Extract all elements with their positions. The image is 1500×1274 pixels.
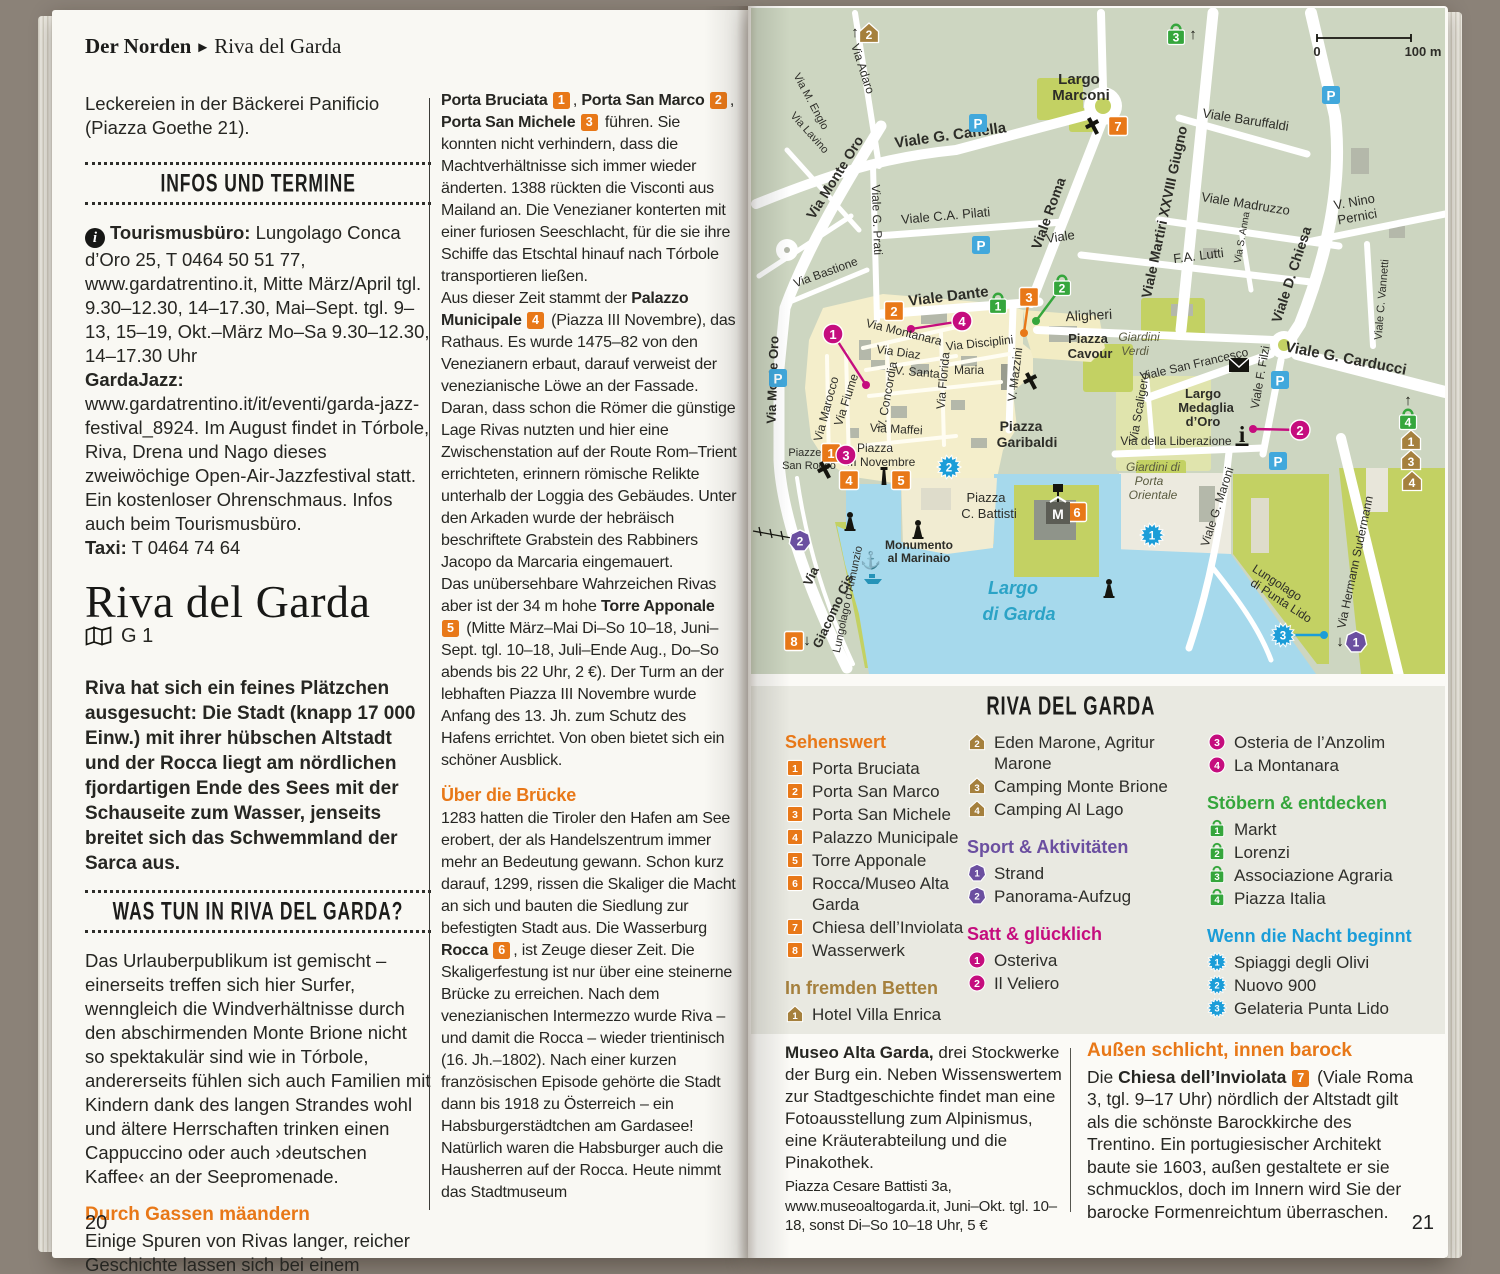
svg-text:3: 3 (842, 448, 849, 463)
map-label: d’Oro (1186, 414, 1221, 429)
paragraph: Porta Bruciata 1, Porta San Marco 2, Por… (441, 90, 739, 288)
svg-text:1: 1 (974, 956, 980, 967)
text-run: 1283 hatten die Tiroler den Hafen am See… (441, 810, 736, 937)
legend-item-label: Porta San Marco (812, 782, 940, 801)
legend-column: 2Eden Marone, Agritur Marone3Camping Mon… (967, 732, 1207, 1042)
legend-item-label: Osteria de l’Anzolim (1234, 733, 1385, 752)
marker-location-dot (862, 381, 870, 389)
legend-marker-sight-icon: 3 (785, 804, 805, 829)
paragraph: Aus dieser Zeit stammt der Palazzo Munic… (441, 288, 739, 574)
map-label: di Garda (982, 604, 1055, 624)
legend-item: 6Rocca/Museo Alta Garda (785, 873, 967, 915)
legend-item: 1Spiaggi degli Olivi (1207, 952, 1433, 973)
svg-text:6: 6 (792, 879, 798, 890)
legend-marker-sight-icon: 7 (785, 917, 805, 942)
svg-text:P: P (976, 239, 985, 254)
svg-text:3: 3 (792, 810, 798, 821)
svg-text:1: 1 (792, 764, 798, 775)
dotted-rule (85, 930, 431, 933)
svg-text:1: 1 (1353, 636, 1360, 650)
legend-item: 2Eden Marone, Agritur Marone (967, 732, 1207, 774)
legend-marker-sight-icon: 5 (785, 850, 805, 875)
museo-text: Museo Alta Garda, drei Stockwerke der Bu… (785, 1042, 1065, 1174)
marker-location-dot (1032, 317, 1040, 325)
svg-text:3: 3 (1173, 31, 1180, 45)
legend-item: 2Nuovo 900 (1207, 975, 1433, 996)
map-marker-food-3: 3 (836, 445, 856, 465)
svg-text:1: 1 (1214, 958, 1219, 968)
legend-marker-food-icon: 2 (967, 973, 987, 998)
offmap-arrow-icon: ↑ (1404, 392, 1412, 409)
legend-item: 3Osteria de l’Anzolim (1207, 732, 1433, 753)
legend-item-label: Strand (994, 864, 1044, 883)
legend-item: 2Lorenzi (1207, 842, 1433, 863)
svg-text:2: 2 (890, 304, 897, 319)
paragraph: Das Urlauberpublikum ist gemischt – eine… (85, 949, 431, 1189)
svg-text:M: M (1052, 506, 1064, 522)
svg-text:1: 1 (1214, 826, 1220, 837)
map-label: Medaglia (1178, 400, 1234, 415)
map-label: al Marinaio (888, 551, 951, 565)
legend-item: 4Piazza Italia (1207, 888, 1433, 909)
svg-text:2: 2 (797, 535, 804, 549)
tourism-info: iTourismusbüro: Lungolago Conca d’Oro 25… (85, 221, 431, 368)
museo-meta: Piazza Cesare Battisti 3a, www.museoalto… (785, 1177, 1065, 1236)
map-label: Porta (1135, 474, 1164, 488)
svg-text:7: 7 (792, 923, 798, 934)
map-marker-food-4: 4 (952, 311, 972, 331)
svg-text:4: 4 (845, 473, 853, 488)
legend-item: 1Hotel Villa Enrica (785, 1004, 967, 1025)
svg-text:2: 2 (1214, 849, 1219, 860)
lead-paragraph: Riva hat sich ein feines Plätzchen ausge… (85, 676, 431, 876)
legend-group: Sport & Aktivitäten1Strand2Panorama-Aufz… (967, 837, 1207, 907)
section-name: Der Norden (85, 34, 191, 58)
sight-marker-inline: 6 (493, 942, 510, 959)
sight-marker-inline: 2 (710, 92, 727, 109)
legend-group-title: Satt & glücklich (967, 924, 1207, 945)
legend-item: 2Il Veliero (967, 973, 1207, 994)
middle-column: Porta Bruciata 1, Porta San Marco 2, Por… (441, 90, 739, 1204)
svg-text:2: 2 (974, 979, 980, 990)
legend-item-label: Palazzo Municipale (812, 828, 958, 847)
legend-group-title: Stöbern & entdecken (1207, 793, 1433, 814)
marker-location-dot (1020, 329, 1028, 337)
svg-text:3: 3 (1214, 738, 1220, 749)
legend-marker-sight-icon: 1 (785, 758, 805, 783)
text-run: , (730, 92, 734, 109)
legend-marker-night-icon: 2 (1207, 975, 1227, 1000)
legend-marker-bed-icon: 4 (967, 799, 987, 824)
legend-item: 4Camping Al Lago (967, 799, 1207, 820)
barock-box: Außen schlicht, innen barock Die Chiesa … (1087, 1040, 1423, 1223)
legend-marker-sport-icon: 1 (967, 863, 987, 888)
svg-text:6: 6 (1073, 505, 1080, 520)
map-marker-sport-1: 1↓ (1336, 631, 1366, 652)
map-marker-p: P (769, 369, 787, 387)
map-marker-p: P (1271, 371, 1289, 389)
subheading-gassen: Durch Gassen mäandern (85, 1203, 431, 1227)
legend-item-label: Lorenzi (1234, 843, 1290, 862)
sight-marker-inline: 7 (1292, 1070, 1309, 1087)
map-label: Largo (1058, 71, 1100, 88)
map-grid-ref: G 1 (121, 624, 153, 648)
legend-item: 5Torre Apponale (785, 850, 967, 871)
legend-item: 3Porta San Michele (785, 804, 967, 825)
legend-item-label: Associazione Agraria (1234, 866, 1393, 885)
text-run: , ist Zeuge dieser Zeit. Die Skaligerfes… (441, 942, 732, 1201)
legend-marker-food-icon: 4 (1207, 755, 1227, 780)
legend-item-label: Camping Al Lago (994, 800, 1123, 819)
legend-group-title: In fremden Betten (785, 978, 967, 999)
svg-text:1: 1 (1149, 530, 1156, 542)
paragraph: Das unübersehbare Wahrzeichen Rivas aber… (441, 574, 739, 772)
svg-text:P: P (1275, 374, 1284, 389)
svg-text:2: 2 (974, 739, 979, 750)
breadcrumb-arrow-icon: ► (195, 40, 210, 56)
legend-item: 3Camping Monte Brione (967, 776, 1207, 797)
svg-text:P: P (773, 372, 782, 387)
legend-item: 1Osteriva (967, 950, 1207, 971)
legend-marker-food-icon: 1 (967, 950, 987, 975)
legend-marker-night-icon: 3 (1207, 998, 1227, 1023)
svg-text:1: 1 (1408, 435, 1415, 449)
bold-run: Porta San Marco (581, 92, 709, 109)
legend-group: 2Eden Marone, Agritur Marone3Camping Mon… (967, 732, 1207, 820)
legend-item: 3Associazione Agraria (1207, 865, 1433, 886)
legend-group-title: Sport & Aktivitäten (967, 837, 1207, 858)
legend-item-label: Panorama-Aufzug (994, 887, 1131, 906)
legend-column: 3Osteria de l’Anzolim4La MontanaraStöber… (1207, 732, 1433, 1042)
map-label: Cavour (1068, 346, 1113, 361)
svg-text:4: 4 (1405, 416, 1412, 430)
taxi-info: Taxi: T 0464 74 64 (85, 536, 431, 560)
legend-item-label: Il Veliero (994, 974, 1059, 993)
map-marker-food-2: 2 (1290, 420, 1310, 440)
page-number-left: 20 (85, 1212, 107, 1235)
legend-item-label: Chiesa dell’Inviolata (812, 918, 963, 937)
legend-item-label: Osteriva (994, 951, 1057, 970)
map-marker-sight-4: 4 (840, 471, 859, 490)
legend-marker-shop-icon: 2 (1207, 842, 1227, 867)
legend-marker-sight-icon: 8 (785, 940, 805, 965)
bold-run: Chiesa dell’Inviolata (1118, 1067, 1291, 1087)
svg-text:3: 3 (1025, 290, 1032, 305)
paragraph: Leckereien in der Bäckerei Panificio (Pi… (85, 92, 431, 140)
text-run: Aus dieser Zeit stammt der (441, 290, 631, 307)
svg-text:8: 8 (790, 634, 797, 649)
map-label: Viale G. Prati (869, 184, 885, 255)
svg-text:3: 3 (1214, 1004, 1219, 1014)
svg-text:4: 4 (1214, 761, 1220, 772)
bold-run: Torre Apponale (601, 598, 715, 615)
legend-group-title: Wenn die Nacht beginnt (1207, 926, 1433, 947)
legend-title: RIVA DEL GARDA (751, 696, 1391, 719)
sight-marker-inline: 5 (442, 620, 459, 637)
legend-item-label: Markt (1234, 820, 1277, 839)
map-label: Largo (1185, 386, 1221, 401)
box-divider (1070, 1048, 1071, 1212)
legend-marker-shop-icon: 4 (1207, 888, 1227, 913)
legend-group: Sehenswert1Porta Bruciata2Porta San Marc… (785, 732, 967, 961)
legend-item: 2Porta San Marco (785, 781, 967, 802)
map-marker-sight-7: 7 (1109, 117, 1128, 136)
map-label: 100 m (1405, 44, 1442, 59)
section-rule-header: INFOS UND TERMINE (85, 162, 431, 205)
legend-item-label: Wasserwerk (812, 941, 905, 960)
legend-marker-food-icon: 3 (1207, 732, 1227, 757)
map-label: Verdi (1121, 344, 1149, 358)
legend-item-label: Eden Marone, Agritur Marone (994, 733, 1155, 773)
info-icon: i (85, 228, 105, 248)
legend-item-label: Porta San Michele (812, 805, 951, 824)
legend-item: 4Palazzo Municipale (785, 827, 967, 848)
text-run: (Piazza III Novembre), das Rathaus. Es w… (441, 312, 737, 571)
legend-group: Wenn die Nacht beginnt1Spiaggi degli Oli… (1207, 926, 1433, 1019)
svg-text:2: 2 (1214, 981, 1219, 991)
infos-header: INFOS UND TERMINE (160, 169, 355, 200)
map-label: Piazza (966, 490, 1006, 505)
legend-group: Satt & glücklich1Osteriva2Il Veliero (967, 924, 1207, 994)
chapter-name: Riva del Garda (214, 34, 341, 58)
legend-marker-shop-icon: 3 (1207, 865, 1227, 890)
offmap-arrow-icon: ↓ (1336, 633, 1344, 650)
svg-text:1: 1 (829, 327, 836, 342)
map-label: 0 (1313, 44, 1320, 59)
map-label: Maria (954, 363, 984, 377)
svg-text:3: 3 (1214, 872, 1219, 883)
legend-item: 8Wasserwerk (785, 940, 967, 961)
legend-marker-bed-icon: 2 (967, 732, 987, 757)
map-label: III Novembre (847, 455, 916, 469)
sight-marker-inline: 3 (581, 114, 598, 131)
map-label: Garibaldi (997, 434, 1058, 450)
svg-text:5: 5 (792, 856, 798, 867)
guidebook-spread: Der Norden►Riva del Garda Leckereien in … (0, 0, 1500, 1274)
bold-run: Porta Bruciata (441, 92, 552, 109)
sight-marker-inline: 1 (553, 92, 570, 109)
svg-text:2: 2 (866, 28, 873, 42)
map-label: Via Maffei (869, 421, 923, 438)
barock-heading: Außen schlicht, innen barock (1087, 1040, 1423, 1063)
svg-text:1: 1 (974, 869, 980, 880)
map-label: Aligheri (1065, 306, 1112, 324)
map-marker-sight-3: 3 (1020, 288, 1039, 307)
svg-text:5: 5 (897, 473, 904, 488)
legend-marker-sport-icon: 2 (967, 886, 987, 911)
legend-marker-sight-icon: 4 (785, 827, 805, 852)
legend-item-label: Camping Monte Brione (994, 777, 1168, 796)
svg-text:4: 4 (974, 806, 980, 817)
legend-item: 1Porta Bruciata (785, 758, 967, 779)
legend-marker-bed-icon: 3 (967, 776, 987, 801)
text-run: (Viale Roma 3, tgl. 9–17 Uhr) nördlich d… (1087, 1067, 1413, 1222)
svg-text:2: 2 (1296, 423, 1303, 438)
svg-text:3: 3 (1280, 630, 1286, 642)
legend-item: 7Chiesa dell’Inviolata (785, 917, 967, 938)
barock-text: Die Chiesa dell’Inviolata 7 (Viale Roma … (1087, 1066, 1423, 1224)
svg-text:i: i (1239, 422, 1246, 447)
bold-run: Porta San Michele (441, 114, 580, 131)
marker-location-dot (1320, 631, 1328, 639)
legend-marker-night-icon: 1 (1207, 952, 1227, 977)
wastun-header: WAS TUN IN RIVA DEL GARDA? (113, 897, 404, 928)
map-marker-p: P (972, 236, 990, 254)
map-marker-sight-5: 5 (892, 471, 911, 490)
dotted-rule (85, 202, 431, 205)
city-title: Riva del Garda (85, 590, 431, 614)
map-reference: G 1 (85, 624, 431, 648)
offmap-arrow-icon: ↓ (803, 632, 811, 649)
map-marker-sight-2: 2 (885, 302, 904, 321)
subheading: Über die Brücke (441, 784, 739, 806)
legend-marker-shop-icon: 1 (1207, 819, 1227, 844)
sight-marker-inline: 4 (527, 312, 544, 329)
legend-item-label: Spiaggi degli Olivi (1234, 953, 1369, 972)
paragraph: 1283 hatten die Tiroler den Hafen am See… (441, 808, 739, 1204)
page-header: Der Norden►Riva del Garda (85, 34, 341, 59)
offmap-arrow-icon: ↑ (1189, 26, 1197, 43)
paragraph: Einige Spuren von Rivas langer, reicher … (85, 1229, 431, 1274)
city-map: Via AdaroVia M. EngloVia LavinoViale G. … (751, 8, 1445, 674)
page-number-right: 21 (1368, 1212, 1434, 1235)
text-run: (Mitte März–Mai Di–So 10–18, Juni–Sept. … (441, 620, 724, 769)
map-icon (85, 626, 112, 646)
svg-text:4: 4 (792, 833, 798, 844)
map-label: Piazza (857, 441, 893, 455)
museo-box: Museo Alta Garda, drei Stockwerke der Bu… (785, 1042, 1065, 1236)
map-marker-p: P (1322, 86, 1340, 104)
svg-text:1: 1 (995, 300, 1002, 314)
svg-text:2: 2 (1059, 282, 1066, 296)
svg-text:1: 1 (792, 1011, 798, 1022)
svg-text:2: 2 (792, 787, 798, 798)
map-label: Orientale (1129, 488, 1178, 502)
legend-item-label: Nuovo 900 (1234, 976, 1316, 995)
svg-text:4: 4 (1214, 895, 1220, 906)
svg-text:P: P (1273, 455, 1282, 470)
legend-item-label: Piazza Italia (1234, 889, 1326, 908)
left-column: Leckereien in der Bäckerei Panificio (Pi… (85, 92, 431, 1274)
gardajazz-info: GardaJazz: www.gardatrentino.it/it/event… (85, 368, 431, 536)
text-run: führen. Sie konnten nicht verhindern, da… (441, 114, 730, 285)
map-label: C. Battisti (961, 506, 1017, 521)
map-marker-sight-6: 6 (1068, 503, 1087, 522)
page-stack-edge-right (1446, 12, 1462, 1258)
svg-text:2: 2 (974, 892, 979, 903)
map-marker-post (1229, 358, 1249, 372)
map-marker-food-1: 1 (823, 324, 843, 344)
legend-item: 1Markt (1207, 819, 1433, 840)
legend-item-label: Gelateria Punta Lido (1234, 999, 1389, 1018)
svg-text:7: 7 (1114, 119, 1121, 134)
map-label: Piazza (1000, 418, 1043, 434)
map-label: Giardini (1118, 330, 1160, 344)
legend-item-label: Torre Apponale (812, 851, 926, 870)
legend-item-label: Rocca/Museo Alta Garda (812, 874, 949, 914)
map-marker-anchor: ⚓ (860, 550, 881, 570)
map-label: Giardini di (1126, 460, 1180, 474)
legend-marker-bed-icon: 1 (785, 1004, 805, 1029)
svg-text:P: P (1326, 89, 1335, 104)
text-run: Die (1087, 1067, 1118, 1087)
map-label: Via della Liberazione (1120, 434, 1232, 448)
map-label: Piazza (1068, 331, 1109, 346)
map-marker-sport-2: 2 (789, 530, 810, 551)
legend-column: Sehenswert1Porta Bruciata2Porta San Marc… (785, 732, 967, 1042)
legend-marker-sight-icon: 6 (785, 873, 805, 898)
svg-text:4: 4 (958, 314, 966, 329)
legend-item: 1Strand (967, 863, 1207, 884)
legend-marker-sight-icon: 2 (785, 781, 805, 806)
legend-group-title: Sehenswert (785, 732, 967, 753)
offmap-arrow-icon: ↑ (851, 24, 859, 41)
map-label: Marconi (1052, 87, 1110, 104)
marker-location-dot (1249, 425, 1257, 433)
bold-run: Rocca (441, 942, 492, 959)
legend-group: In fremden Betten1Hotel Villa Enrica (785, 978, 967, 1025)
svg-text:8: 8 (792, 946, 798, 957)
legend-item: 2Panorama-Aufzug (967, 886, 1207, 907)
map-marker-sight-8: 8↓ (785, 632, 811, 651)
svg-text:4: 4 (1409, 476, 1416, 490)
svg-text:1: 1 (827, 446, 834, 461)
svg-text:2: 2 (946, 462, 952, 474)
map-marker-p: P (969, 114, 987, 132)
legend-group: Stöbern & entdecken1Markt2Lorenzi3Associ… (1207, 793, 1433, 909)
legend-item: 4La Montanara (1207, 755, 1433, 776)
svg-text:P: P (973, 117, 982, 132)
section-rule-header: WAS TUN IN RIVA DEL GARDA? (85, 890, 431, 933)
legend-item: 3Gelateria Punta Lido (1207, 998, 1433, 1019)
map-marker-p: P (1269, 452, 1287, 470)
legend-item-label: Hotel Villa Enrica (812, 1005, 941, 1024)
svg-text:3: 3 (1408, 455, 1415, 469)
column-divider (429, 98, 430, 1210)
map-label: Monumento (885, 538, 953, 552)
svg-text:⚓: ⚓ (860, 550, 881, 570)
svg-text:3: 3 (974, 783, 979, 794)
map-label: Largo (988, 578, 1038, 598)
legend-item-label: Porta Bruciata (812, 759, 920, 778)
legend-group: 3Osteria de l’Anzolim4La Montanara (1207, 732, 1433, 776)
legend-item-label: La Montanara (1234, 756, 1339, 775)
legend-columns: Sehenswert1Porta Bruciata2Porta San Marc… (785, 732, 1433, 1042)
